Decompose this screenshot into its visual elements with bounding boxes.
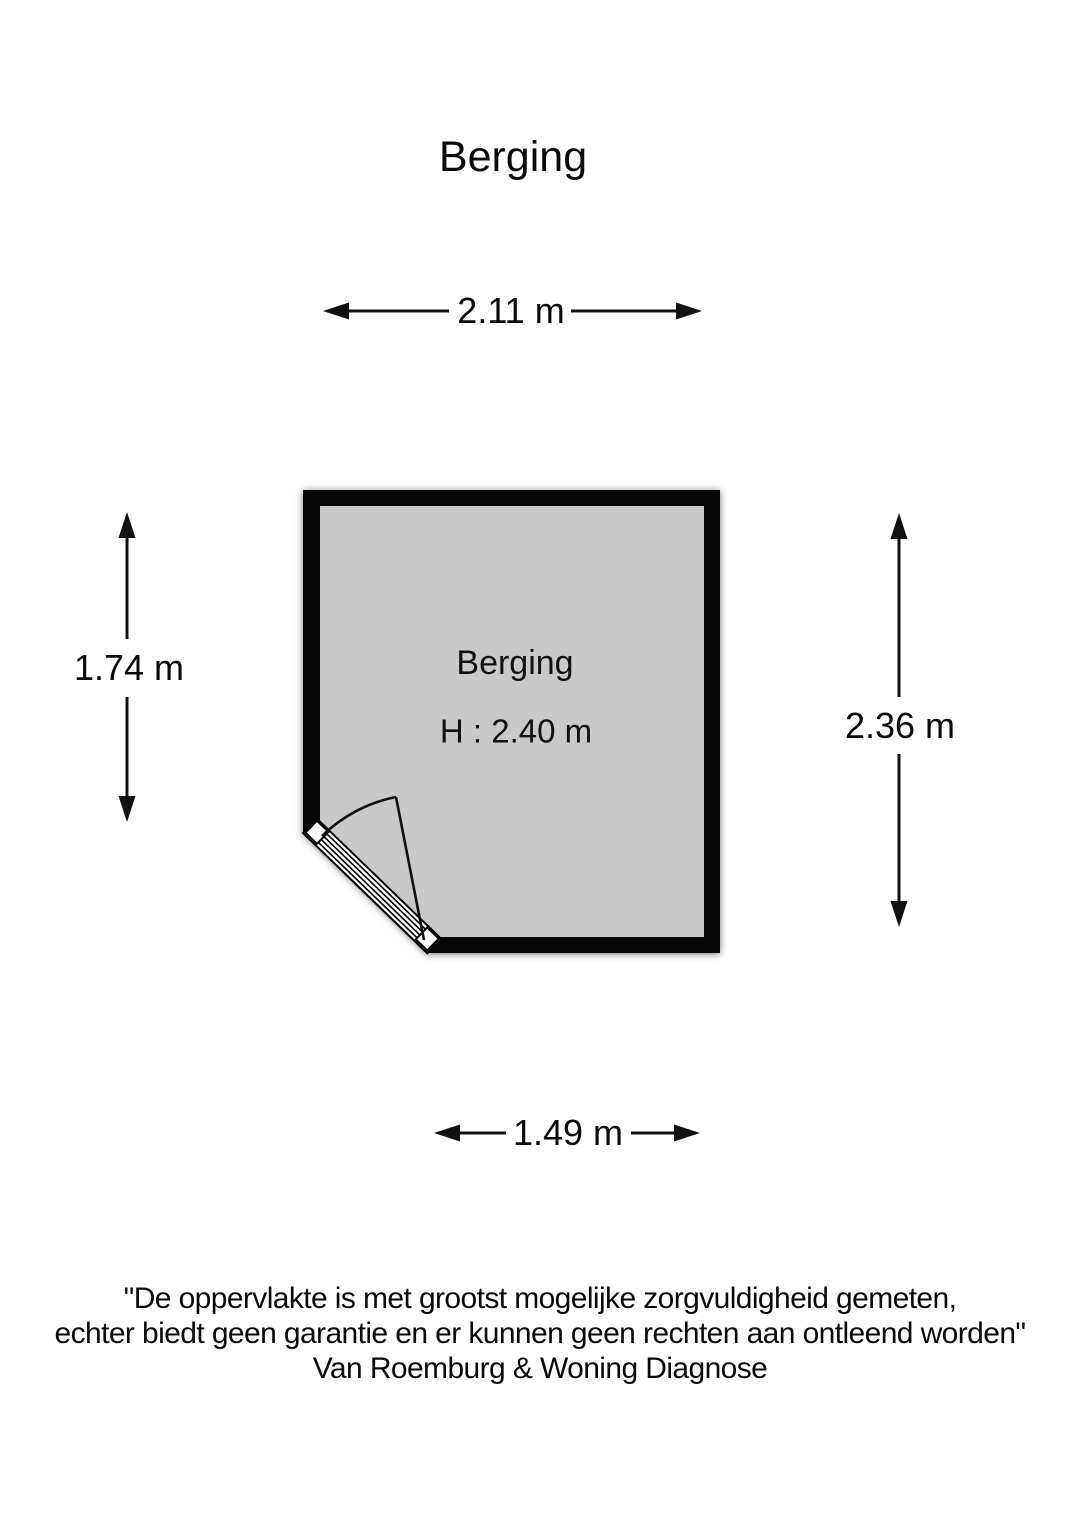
room-name-label: Berging — [456, 646, 573, 680]
disclaimer-line-3: Van Roemburg & Woning Diagnose — [0, 1351, 1080, 1386]
dim-label-right: 2.36 m — [845, 708, 955, 744]
dim-label-bottom: 1.49 m — [513, 1115, 623, 1151]
page-title: Berging — [439, 136, 587, 179]
room-height-label: H : 2.40 m — [440, 715, 592, 748]
dim-label-left: 1.74 m — [74, 650, 184, 686]
disclaimer: "De oppervlakte is met grootst mogelijke… — [0, 1281, 1080, 1386]
floorplan-page: Berging 2.11 m 1.74 m 2.36 m 1.49 m Berg… — [0, 0, 1080, 1527]
disclaimer-line-2: echter biedt geen garantie en er kunnen … — [0, 1316, 1080, 1351]
disclaimer-line-1: "De oppervlakte is met grootst mogelijke… — [0, 1281, 1080, 1316]
dim-label-top: 2.11 m — [457, 293, 564, 329]
